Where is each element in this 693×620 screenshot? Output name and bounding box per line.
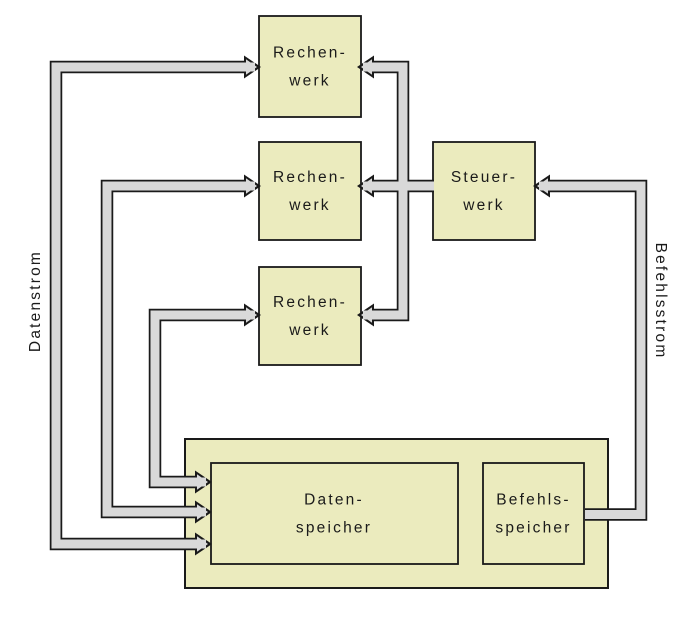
block-datenspeicher: Daten- speicher bbox=[211, 463, 458, 564]
befehlsspeicher-box bbox=[483, 463, 584, 564]
befehlsspeicher-label-line2: speicher bbox=[495, 520, 571, 537]
datenstrom-label: Datenstrom bbox=[27, 250, 44, 352]
block-rechenwerk-1: Rechen- werk bbox=[259, 16, 361, 117]
block-steuerwerk: Steuer- werk bbox=[433, 142, 535, 240]
control-pipe-steuerwerk-to-rechenwerk bbox=[357, 56, 434, 327]
block-befehlsspeicher: Befehls- speicher bbox=[483, 463, 584, 564]
steuerwerk-box bbox=[433, 142, 535, 240]
rechenwerk-2-box bbox=[259, 142, 361, 240]
diagram-canvas: Daten- speicher Befehls- speicher Rechen… bbox=[0, 0, 693, 620]
rechenwerk-3-label-line2: werk bbox=[288, 322, 331, 339]
steuerwerk-label-line2: werk bbox=[462, 197, 505, 214]
simd-architecture-diagram: Daten- speicher Befehls- speicher Rechen… bbox=[0, 0, 693, 620]
datenspeicher-box bbox=[211, 463, 458, 564]
datenspeicher-label-line1: Daten- bbox=[304, 492, 364, 509]
rechenwerk-3-label-line1: Rechen- bbox=[273, 294, 347, 311]
rechenwerk-2-label-line2: werk bbox=[288, 197, 331, 214]
rechenwerk-1-label-line2: werk bbox=[288, 73, 331, 90]
datenspeicher-label-line2: speicher bbox=[296, 520, 372, 537]
block-rechenwerk-2: Rechen- werk bbox=[259, 142, 361, 240]
steuerwerk-label-line1: Steuer- bbox=[451, 169, 517, 186]
block-rechenwerk-3: Rechen- werk bbox=[259, 267, 361, 365]
rechenwerk-2-label-line1: Rechen- bbox=[273, 169, 347, 186]
rechenwerk-1-box bbox=[259, 16, 361, 117]
befehlsstrom-label: Befehlsstrom bbox=[652, 243, 669, 360]
rechenwerk-3-box bbox=[259, 267, 361, 365]
befehlsspeicher-label-line1: Befehls- bbox=[496, 492, 570, 509]
rechenwerk-1-label-line1: Rechen- bbox=[273, 45, 347, 62]
